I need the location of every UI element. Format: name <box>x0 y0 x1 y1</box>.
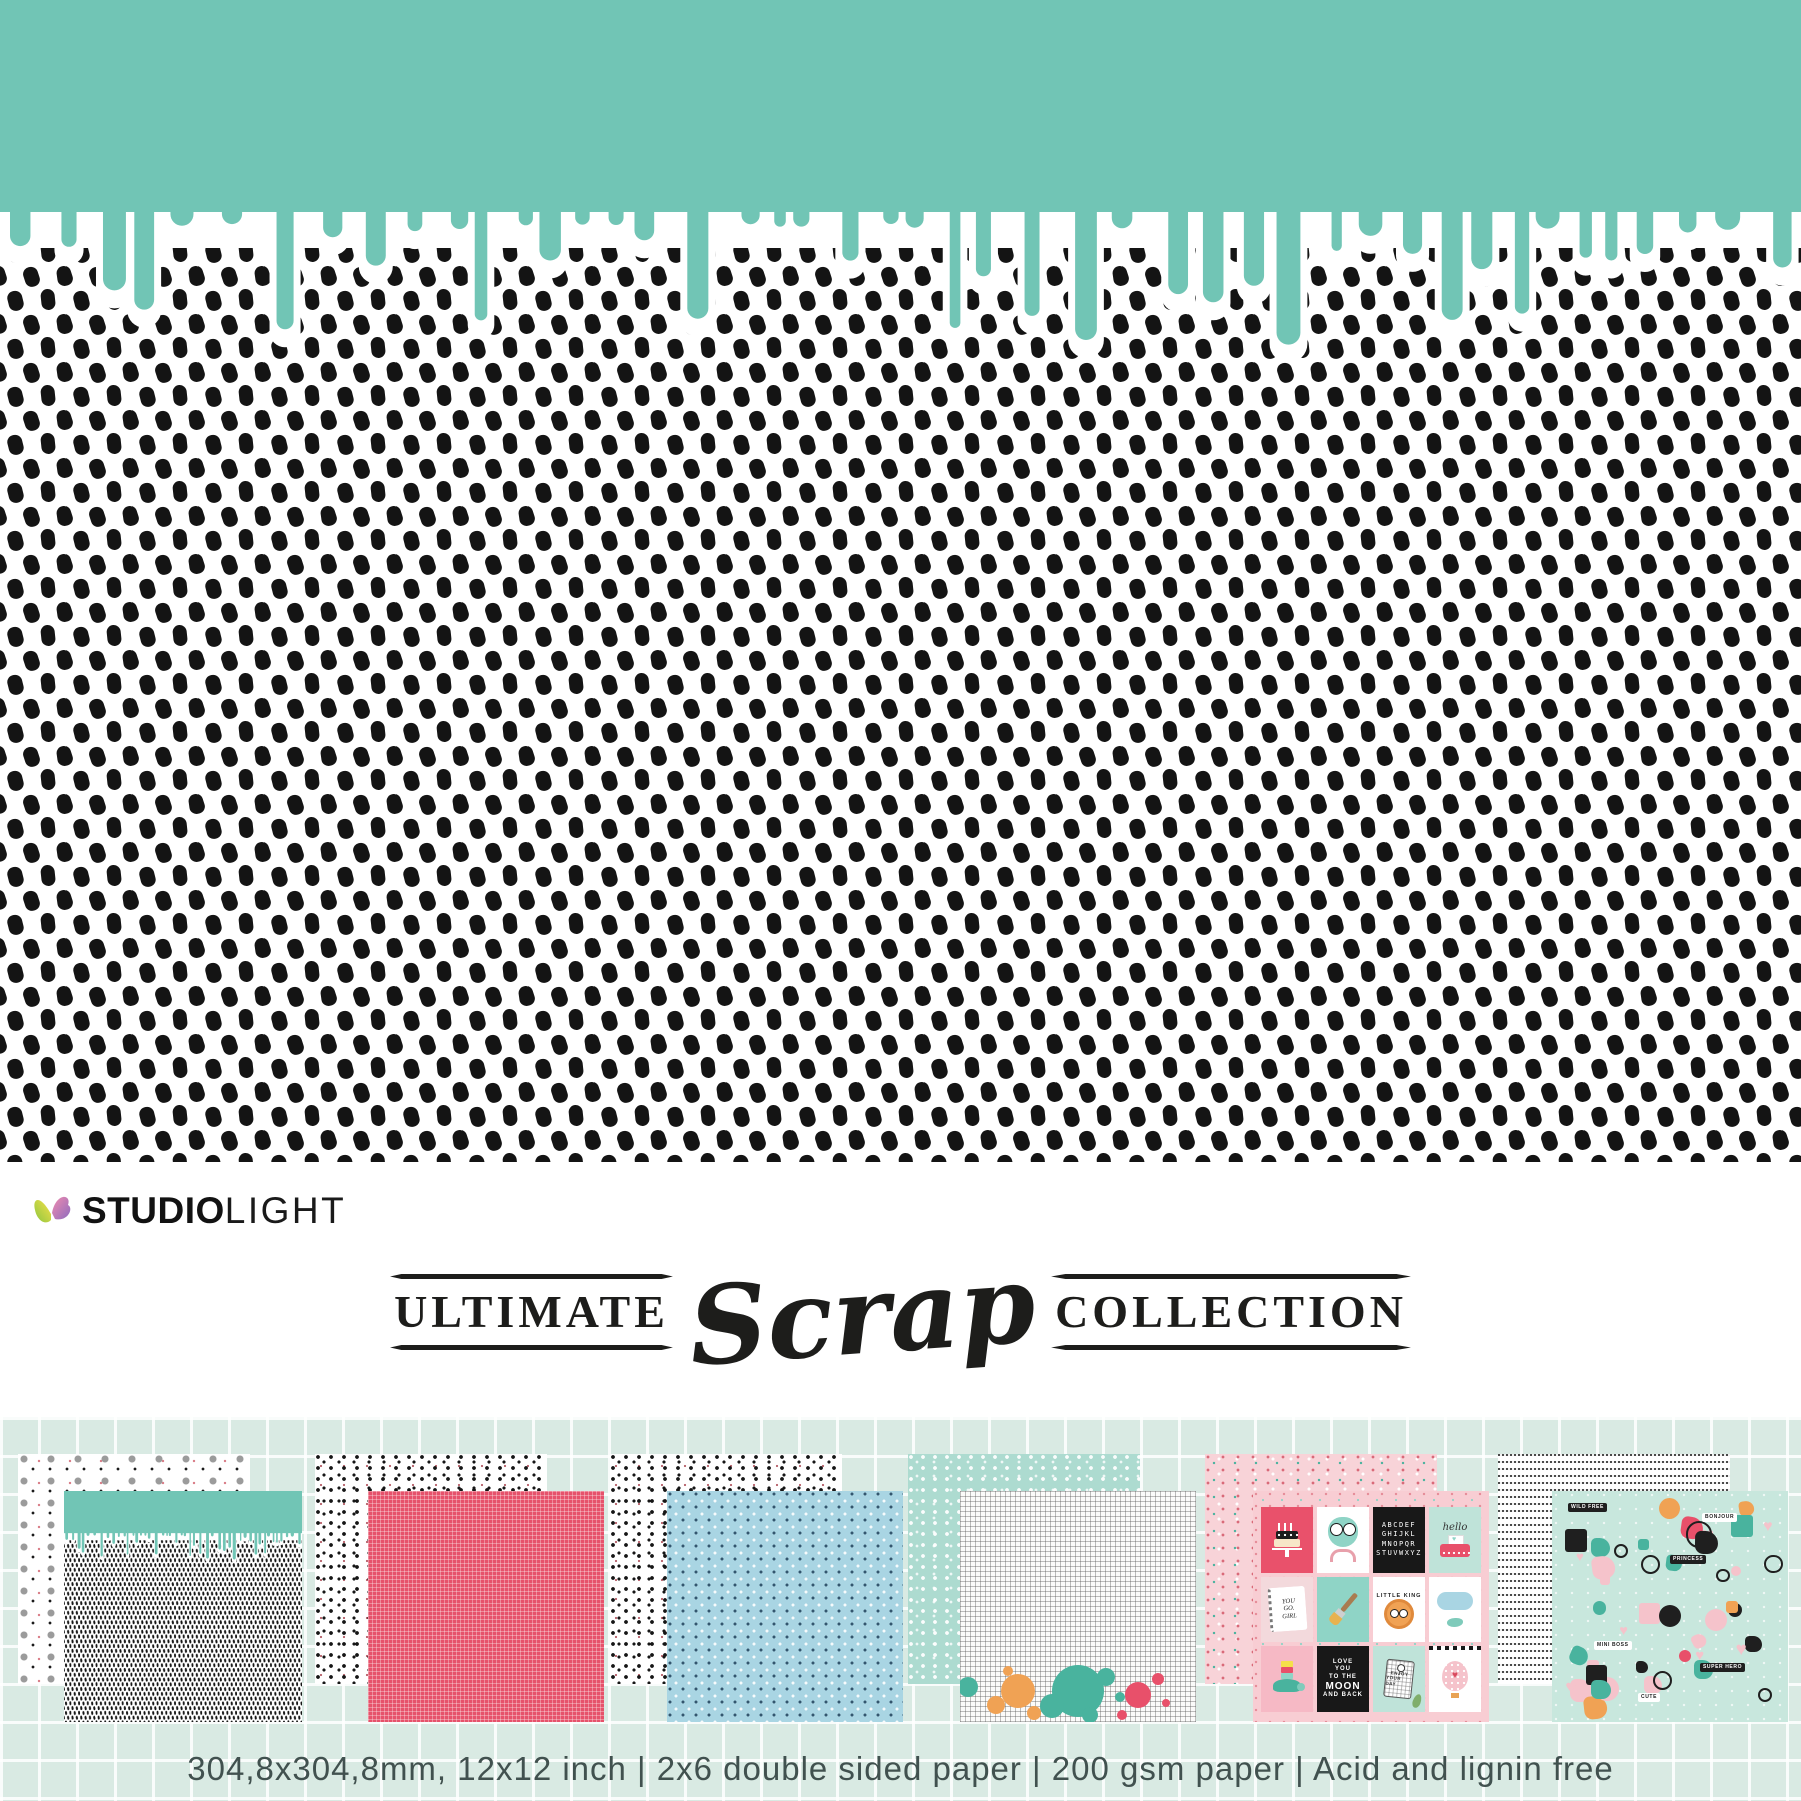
sticker-shape: ♥ <box>1717 1612 1729 1624</box>
card-enjoy-tag: ENJOY YOUR DAY <box>1373 1646 1425 1712</box>
brand-band: STUDIO LIGHT ULTIMATE Scrap COLLECTION <box>0 1162 1801 1417</box>
sticker-shape <box>1659 1498 1680 1519</box>
sticker-shape <box>1659 1605 1681 1627</box>
card-heart-balloon: ♥ <box>1429 1646 1481 1712</box>
title-rule-bottom-left <box>390 1345 673 1350</box>
sticker-shape <box>1565 1529 1588 1552</box>
sticker-badge: BONJOUR <box>1702 1513 1737 1522</box>
card-turtle-gifts <box>1261 1646 1313 1712</box>
tag-icon: ENJOY YOUR DAY <box>1383 1659 1415 1700</box>
sticker-shape <box>1689 1632 1707 1650</box>
logo-wordmark: STUDIO LIGHT <box>82 1192 346 1229</box>
preview-sheet-5-front-cards: ABCDEF GHIJKL MNOPQR STUVWXYZ hello ♥ <box>1253 1491 1489 1722</box>
preview-sheet-3-front-blue-dots <box>667 1491 903 1722</box>
logo-studio: STUDIO <box>82 1192 225 1229</box>
title-ultimate: ULTIMATE <box>390 1288 673 1336</box>
product-specs-text: 304,8x304,8mm, 12x12 inch | 2x6 double s… <box>0 1747 1801 1791</box>
whale-icon <box>1447 1618 1463 1627</box>
drip-paper-pattern <box>0 0 1801 1162</box>
sticker-shape <box>1638 1539 1649 1550</box>
card-grid: ABCDEF GHIJKL MNOPQR STUVWXYZ hello ♥ <box>1253 1491 1489 1722</box>
product-cover-image: STUDIO LIGHT ULTIMATE Scrap COLLECTION <box>0 0 1801 1801</box>
sticker-shape <box>1641 1555 1660 1574</box>
sticker-shape <box>1636 1661 1648 1673</box>
sticker-shape <box>1591 1680 1611 1700</box>
card-love-moon: LOVE YOU TO THE MOON AND BACK <box>1317 1646 1369 1712</box>
sticker-shape: ♥ <box>1576 1552 1586 1562</box>
card-hello-typewriter: hello ♥ <box>1429 1507 1481 1573</box>
sticker-shape <box>1653 1671 1672 1690</box>
drip-paper-hero <box>0 0 1801 1162</box>
sticker-badge: CUTE <box>1638 1693 1660 1702</box>
turtle-icon <box>1269 1661 1305 1697</box>
sticker-badge: WILD FREE <box>1568 1503 1607 1512</box>
sticker-shape <box>1679 1650 1691 1662</box>
title-rule-bottom-right <box>1051 1345 1411 1350</box>
sticker-badge: SUPER HERO <box>1700 1663 1745 1672</box>
title-left-group: ULTIMATE <box>390 1274 673 1350</box>
sticker-shape <box>1731 1566 1741 1576</box>
sticker-shape <box>1716 1569 1729 1582</box>
sticker-shape <box>1591 1538 1611 1558</box>
preview-sheet-4-front-graph-splats <box>960 1491 1196 1722</box>
rainbow-icon <box>1330 1549 1356 1562</box>
title-rule-top-right <box>1051 1274 1411 1279</box>
card-birthday-cake <box>1261 1507 1313 1573</box>
card-you-go-girl: YOU GO. GIRL <box>1261 1577 1313 1643</box>
sticker-shape: ♥ <box>1736 1641 1752 1657</box>
studio-light-logo: STUDIO LIGHT <box>30 1188 346 1232</box>
card-cloud-whale <box>1429 1577 1481 1643</box>
sticker-shape <box>1593 1601 1606 1614</box>
title-collection: COLLECTION <box>1051 1288 1411 1336</box>
title-rule-top-left <box>390 1274 673 1279</box>
sticker-shape: ♥ <box>1620 1626 1631 1637</box>
card-owl <box>1317 1507 1369 1573</box>
sticker-badge: PRINCESS <box>1670 1555 1706 1564</box>
card-paintbrush <box>1317 1577 1369 1643</box>
sticker-shape <box>1726 1601 1738 1613</box>
cloud-icon <box>1437 1592 1473 1610</box>
paint-splats <box>960 1491 1196 1722</box>
hot-air-balloon-icon: ♥ <box>1442 1661 1468 1691</box>
sticker-shape: ♥ <box>1763 1521 1776 1534</box>
logo-light: LIGHT <box>225 1192 346 1229</box>
sticker-shape <box>1591 1554 1617 1580</box>
paintbrush-icon <box>1317 1581 1369 1637</box>
mini-drip-paper <box>64 1491 302 1722</box>
preview-strip: ABCDEF GHIJKL MNOPQR STUVWXYZ hello ♥ <box>0 1417 1801 1801</box>
sticker-shape <box>1639 1603 1660 1624</box>
collection-title: ULTIMATE Scrap COLLECTION <box>0 1258 1801 1366</box>
butterfly-icon <box>30 1188 74 1232</box>
title-right-group: COLLECTION <box>1051 1274 1411 1350</box>
lion-icon <box>1387 1602 1411 1626</box>
preview-sheet-1-front-drip-paper <box>64 1491 302 1722</box>
typewriter-icon: ♥ <box>1440 1535 1470 1557</box>
card-little-king: LITTLE KING <box>1373 1577 1425 1643</box>
sticker-badge: MINI BOSS <box>1594 1641 1632 1650</box>
owl-icon <box>1328 1517 1358 1547</box>
preview-sheet-2-front-red-weave <box>368 1491 604 1722</box>
card-alphabet: ABCDEF GHIJKL MNOPQR STUVWXYZ <box>1373 1507 1425 1573</box>
sticker-shape <box>1614 1544 1628 1558</box>
sticker-shape <box>1764 1555 1783 1574</box>
title-scrap-script: Scrap <box>686 1250 1039 1382</box>
sticker-shape: ♥ <box>1565 1679 1580 1694</box>
sticker-shape <box>1758 1688 1772 1702</box>
preview-sheet-6-front-stickers: ♥♥♥♥♥♥♥♥WILD FREEBONJOURPRINCESSMINI BOS… <box>1552 1491 1788 1722</box>
